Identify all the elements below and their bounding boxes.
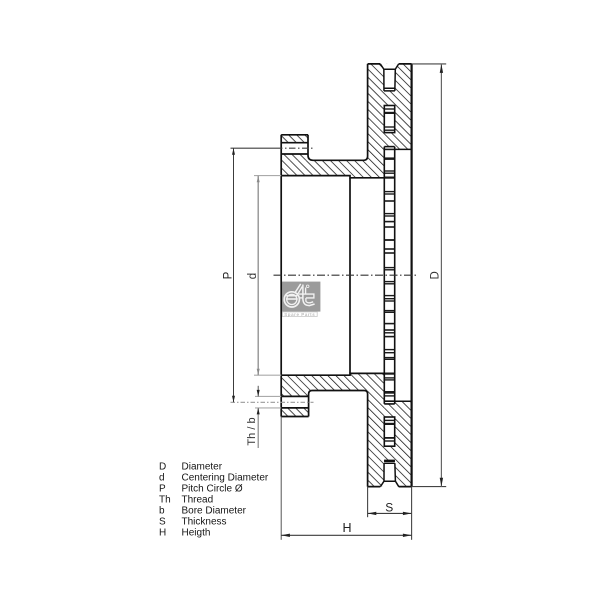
svg-text:D: D	[430, 271, 442, 279]
svg-text:Th: Th	[159, 495, 171, 506]
svg-text:d: d	[159, 473, 165, 484]
svg-text:D: D	[159, 462, 166, 473]
svg-text:Thickness: Thickness	[182, 517, 227, 528]
svg-text:Thread: Thread	[182, 495, 214, 506]
svg-text:d: d	[247, 273, 259, 279]
svg-text:Bore Diameter: Bore Diameter	[182, 506, 247, 517]
svg-text:Th / b: Th / b	[246, 417, 258, 445]
svg-text:S: S	[385, 501, 393, 515]
svg-text:H: H	[342, 521, 351, 535]
svg-text:S: S	[159, 517, 166, 528]
svg-text:P: P	[223, 271, 235, 279]
svg-text:Centering Diameter: Centering Diameter	[182, 473, 269, 484]
svg-text:Heigth: Heigth	[182, 528, 211, 539]
svg-text:Spare Parts: Spare Parts	[284, 312, 315, 317]
svg-text:b: b	[159, 506, 165, 517]
svg-text:Diameter: Diameter	[182, 462, 223, 473]
svg-text:Pitch Circle Ø: Pitch Circle Ø	[182, 484, 243, 495]
svg-text:P: P	[159, 484, 166, 495]
svg-text:H: H	[159, 528, 166, 539]
